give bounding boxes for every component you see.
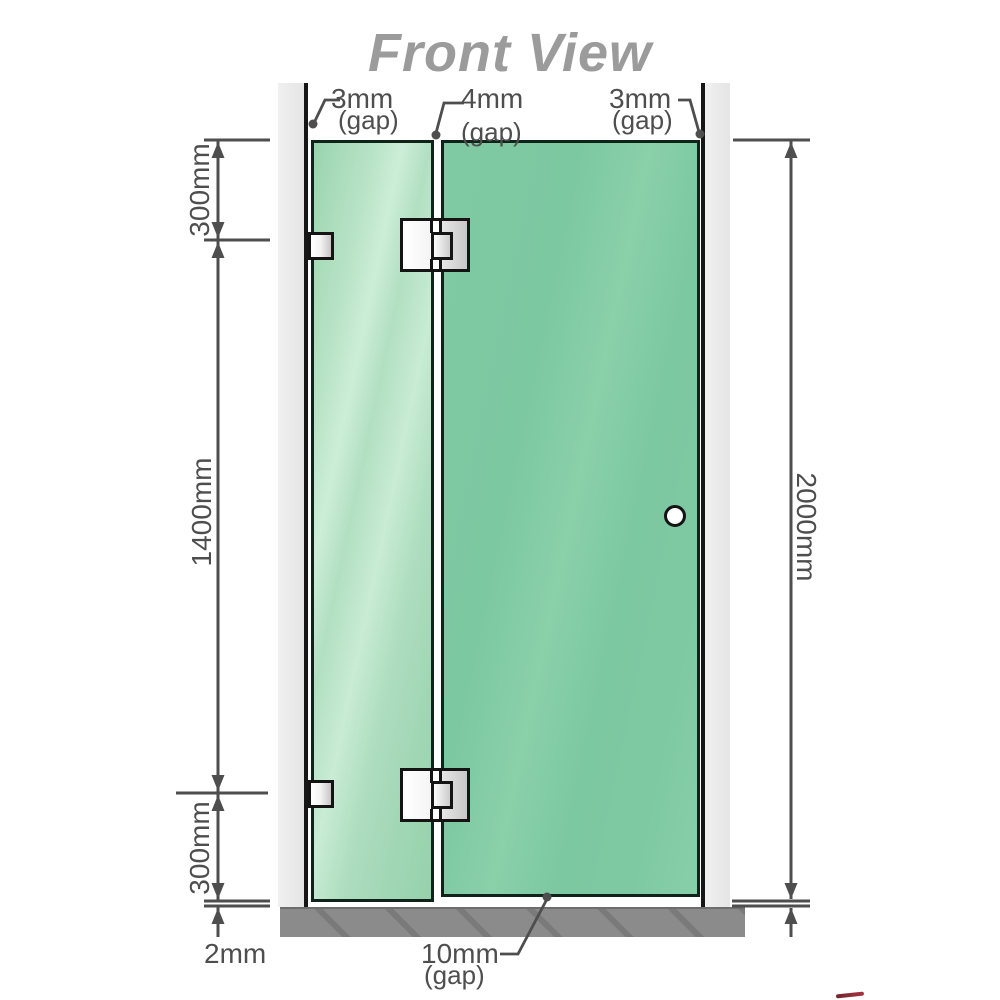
gap-bottom-caption: (gap) bbox=[424, 962, 485, 988]
dimension-left: 1400mm bbox=[188, 458, 216, 567]
gap-left-caption: (gap) bbox=[338, 107, 399, 133]
door-handle-knob bbox=[664, 505, 686, 527]
hinge-bottom-seam-lower bbox=[430, 809, 442, 819]
dimension-top-left: 300mm bbox=[186, 143, 214, 236]
hinge-top-clamp-block bbox=[431, 232, 453, 260]
glass-door-panel bbox=[441, 140, 700, 897]
hinge-bottom-clamp-block bbox=[431, 781, 453, 809]
gap-middle-value: 4mm bbox=[461, 85, 523, 113]
wall-bracket-bottom bbox=[308, 780, 334, 808]
hinge-top-seam-lower bbox=[430, 259, 442, 269]
wall-channel-left bbox=[278, 83, 304, 907]
diagram-title: Front View bbox=[368, 26, 652, 80]
wall-channel-right bbox=[705, 83, 730, 907]
dimension-right-height: 2000mm bbox=[792, 473, 820, 582]
dimension-base-clearance: 2mm bbox=[204, 940, 266, 968]
wall-bracket-top bbox=[308, 232, 334, 260]
red-mark-artifact bbox=[836, 992, 864, 999]
dimension-bottom-left: 300mm bbox=[186, 801, 214, 894]
gap-middle-caption: (gap) bbox=[461, 119, 522, 145]
front-view-diagram: Front View bbox=[0, 0, 1000, 1000]
gap-right-caption: (gap) bbox=[612, 107, 673, 133]
floor-base bbox=[280, 907, 745, 937]
